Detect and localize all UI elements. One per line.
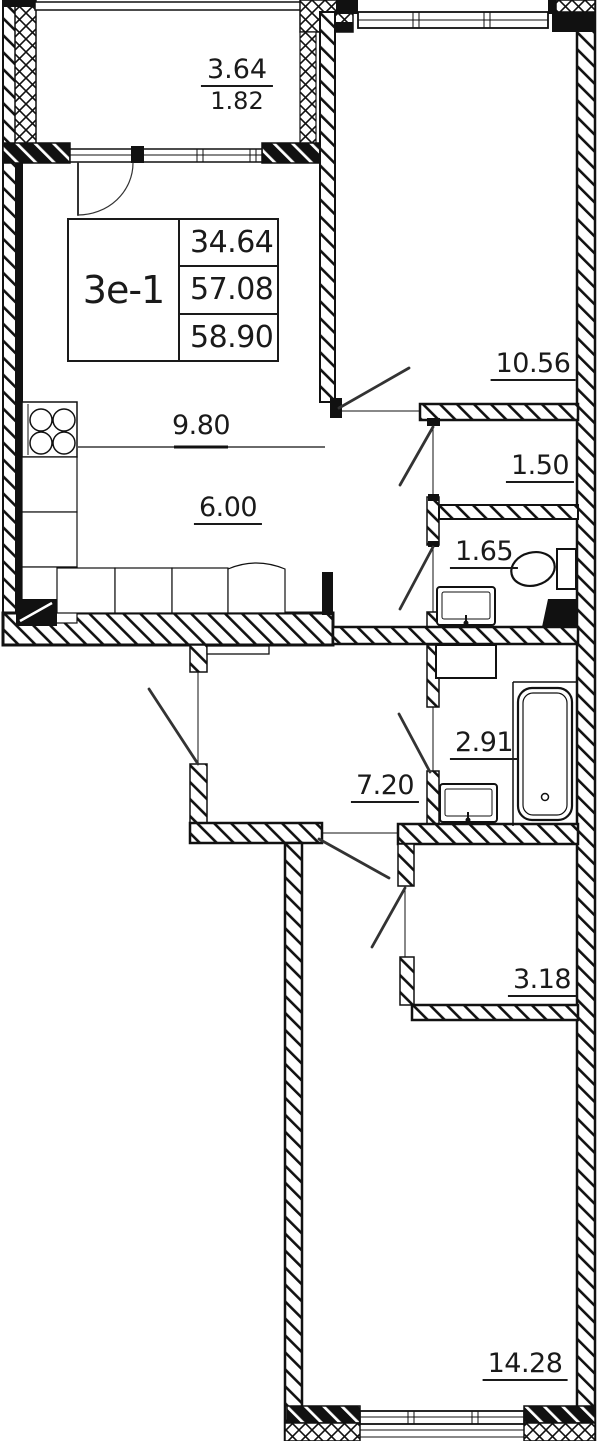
- unit-name: 3e-1: [69, 220, 180, 360]
- bathroom-area-label: 2.91: [450, 729, 518, 760]
- bedroom-top-area-label: 10.56: [491, 350, 576, 381]
- living-zone-area-label: 6.00: [194, 494, 262, 525]
- bedroom-bottom-area-label: 14.28: [483, 1350, 568, 1381]
- entry-door-leaf: [149, 689, 198, 764]
- wardrobe-area-label: 1.50: [506, 452, 574, 483]
- unit-info-table: 3e-1 34.64 57.08 58.90: [67, 218, 279, 362]
- bedroom-bottom-window: [360, 1411, 524, 1437]
- wall-balcony-right: [300, 32, 316, 144]
- wc-sink: [437, 587, 495, 626]
- stove: [22, 402, 77, 457]
- balcony-door: [78, 163, 133, 215]
- kitchen-zone-area-label: 9.80: [172, 412, 230, 440]
- wall-left-lower: [285, 843, 302, 1441]
- balcony-area-half: 1.82: [201, 87, 273, 113]
- bathtub-drain: [542, 794, 549, 801]
- wall-left-outer: [3, 0, 16, 645]
- balcony-area-label: 3.64 1.82: [201, 56, 273, 113]
- wardrobe-door: [400, 426, 433, 497]
- hallway-area-label: 7.20: [351, 772, 419, 803]
- wall-balcony-left: [15, 0, 36, 162]
- bathroom-sink: [440, 784, 497, 823]
- bathroom-door: [399, 707, 433, 772]
- walls: [3, 0, 595, 1441]
- wall-right-outer: [577, 0, 595, 1441]
- wc-corner-shelf: [542, 599, 578, 627]
- bedroom-top-door: [339, 368, 420, 411]
- unit-total-area: 57.08: [180, 267, 277, 314]
- floor-plan-drawing: [0, 0, 600, 1441]
- bathtub: [513, 682, 577, 826]
- wall-partition-bedroom: [320, 12, 335, 402]
- kitchen-balcony-window: [70, 146, 262, 163]
- balcony-glazing: [35, 2, 302, 10]
- balcony-door-swing-arc: [78, 163, 133, 215]
- storage-area-label: 3.18: [508, 966, 576, 997]
- bedroom-top-window: [358, 12, 548, 28]
- washing-machine: [436, 645, 496, 678]
- floor-plan: 3e-1 34.64 57.08 58.90 3.64 1.82 10.56 9…: [0, 0, 600, 1441]
- kitchen-counter-bottom: [57, 563, 285, 613]
- unit-living-area: 34.64: [180, 220, 277, 267]
- balcony-area-full: 3.64: [201, 56, 273, 87]
- lower-hall-door: [319, 833, 398, 878]
- entry-door: [149, 646, 269, 764]
- wc-area-label: 1.65: [450, 538, 518, 569]
- unit-total-area-with-balcony: 58.90: [180, 315, 277, 360]
- storage-door: [372, 886, 405, 957]
- wc-door: [400, 545, 433, 612]
- kitchen-sink: [16, 599, 57, 626]
